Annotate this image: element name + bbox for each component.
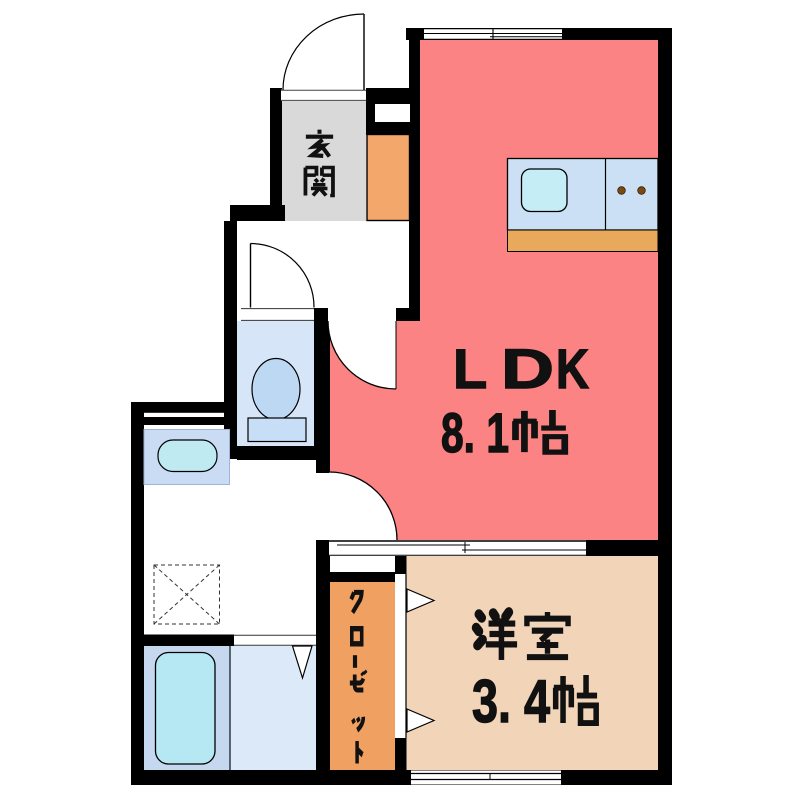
svg-text:8. 1: 8. 1 (441, 401, 509, 464)
svg-text:D: D (501, 337, 554, 400)
svg-text:K: K (556, 337, 589, 400)
svg-text:L: L (453, 337, 487, 400)
svg-text:3. 4: 3. 4 (472, 668, 550, 735)
